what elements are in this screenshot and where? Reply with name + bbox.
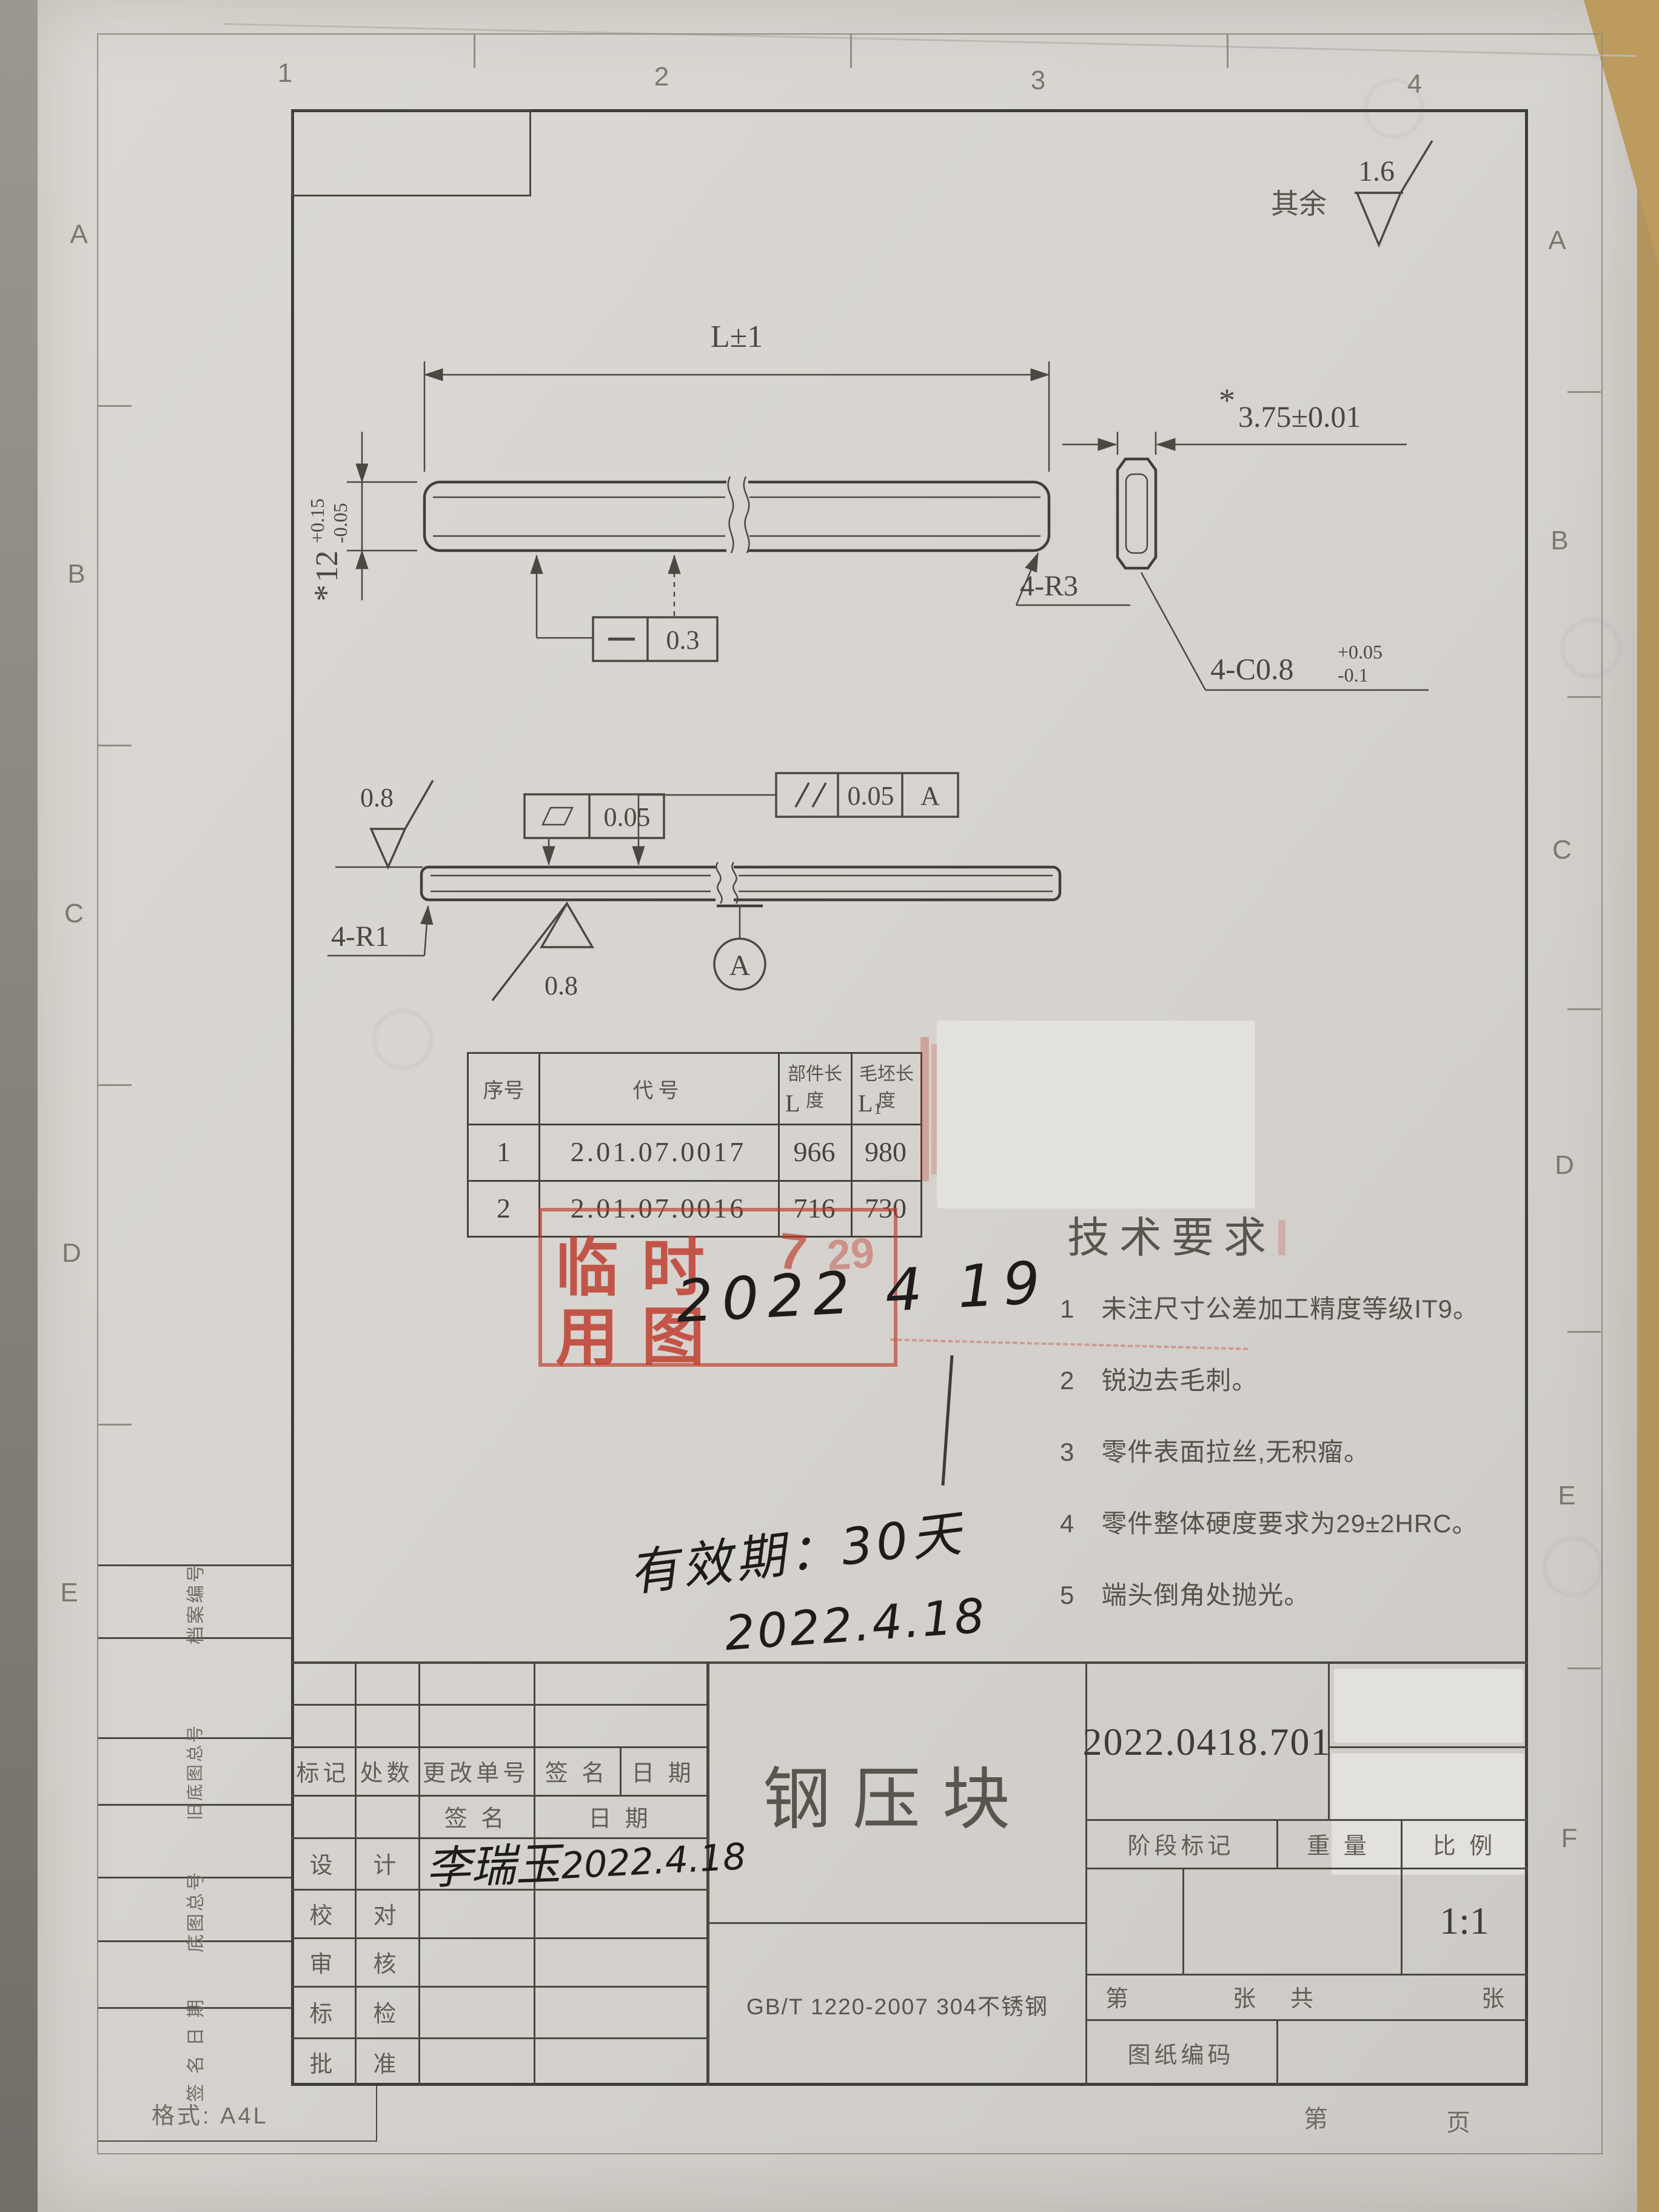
- tech-req-item: 3零件表面拉丝,无积瘤。: [1060, 1432, 1521, 1503]
- sheet-label: 第: [1098, 1974, 1140, 2019]
- grid-letter: F: [1551, 1823, 1587, 1854]
- margin-label-sign-date: 签 名 日 期: [181, 1983, 207, 2116]
- col-header-seq: 序号: [469, 1054, 538, 1124]
- parallelism-icon: [796, 783, 809, 807]
- sub-header-date: 日 期: [534, 1795, 706, 1837]
- redaction-patch: [1334, 1669, 1523, 1743]
- rev-header-date: 日 期: [620, 1746, 706, 1795]
- svg-text:12: 12: [310, 551, 344, 582]
- svg-text:+0.15: +0.15: [306, 498, 328, 543]
- table-row-code: 2.01.07.0017: [538, 1124, 778, 1180]
- margin-label-archive-no: 档案编号: [181, 1552, 207, 1655]
- grid-letter: E: [51, 1578, 87, 1608]
- tech-req-list: 1未注尺寸公差加工精度等级IT9。 2锐边去毛刺。 3零件表面拉丝,无积瘤。 4…: [1060, 1289, 1521, 1646]
- straightness-value: 0.3: [666, 625, 700, 655]
- table-row-part-len: 966: [778, 1124, 851, 1180]
- svg-text:-0.05: -0.05: [329, 503, 351, 543]
- svg-text:-0.1: -0.1: [1338, 664, 1369, 686]
- margin-label-master-no: 底图总号: [181, 1860, 207, 1963]
- grid-number: 3: [1020, 65, 1056, 96]
- grid-tick: [850, 35, 852, 68]
- flatness-value: 0.05: [604, 802, 651, 832]
- role-review: 审: [291, 1937, 355, 1986]
- drawing-number: 2022.0418.701: [1087, 1664, 1327, 1819]
- left-shadow: [0, 0, 38, 2212]
- part-outline-end-view: [1118, 459, 1156, 568]
- tech-req-item: 4零件整体硬度要求为29±2HRC。: [1060, 1503, 1521, 1575]
- parallelism-datum: A: [920, 781, 940, 811]
- rev-header-mark: 标记: [291, 1746, 355, 1795]
- rev-header-order-no: 更改单号: [418, 1746, 534, 1795]
- grid-letter: C: [1544, 835, 1580, 865]
- svg-text:+0.05: +0.05: [1338, 641, 1382, 663]
- red-stamp-fragment: [920, 1037, 929, 1181]
- grid-number: 4: [1396, 69, 1433, 99]
- grid-tick: [1227, 35, 1228, 68]
- dimension-thickness: 3.75±0.01: [1238, 400, 1361, 434]
- rev-header-count: 处数: [355, 1746, 418, 1795]
- table-row-blank-len: 980: [851, 1124, 920, 1180]
- tech-req-title: 技术要求: [1067, 1204, 1276, 1265]
- grid-number: 2: [643, 62, 680, 92]
- page-note-suffix: 页: [1446, 2103, 1470, 2138]
- material-spec: GB/T 1220-2007 304不锈钢: [709, 1924, 1085, 2085]
- format-note: 格式: A4L: [152, 2097, 269, 2130]
- designer-signature: 李瑞玉: [424, 1828, 561, 1897]
- grid-letter: E: [1549, 1481, 1585, 1511]
- parallelism-value: 0.05: [848, 781, 894, 811]
- grid-tick: [1567, 1331, 1601, 1333]
- tech-req-item: 5端头倒角处抛光。: [1060, 1575, 1521, 1646]
- roughness-icon: [1357, 193, 1401, 245]
- stage-mark-label: 阶段标记: [1085, 1819, 1276, 1868]
- surface-default-value: 1.6: [1358, 155, 1395, 187]
- grid-tick: [98, 405, 132, 407]
- red-stamp-fragment: [931, 1044, 937, 1175]
- red-stamp-fragment: [1278, 1220, 1285, 1255]
- datum-label: A: [729, 950, 751, 982]
- grid-letter: A: [1539, 226, 1575, 256]
- table-row-seq: 1: [469, 1124, 538, 1180]
- chamfer-label: 4-C0.8: [1210, 652, 1294, 686]
- part-title: 钢压块: [709, 1664, 1085, 1922]
- margin-label-old-master-no: 旧底图总号: [182, 1711, 206, 1832]
- roughness-top-value: 0.8: [360, 783, 394, 813]
- tech-req-item: 2锐边去毛刺。: [1060, 1360, 1521, 1432]
- scale-label: 比 例: [1401, 1819, 1528, 1868]
- grid-letter: A: [61, 220, 97, 250]
- svg-text:*: *: [307, 585, 345, 602]
- photo-of-engineering-drawing: { "colors": {"paper":"#d8d5d0","line":"#…: [0, 0, 1659, 2212]
- grid-tick: [1567, 391, 1601, 393]
- grid-tick: [474, 35, 475, 68]
- grid-tick: [98, 1424, 132, 1426]
- corner-radius-label: 4-R1: [331, 920, 389, 953]
- scale-value: 1:1: [1401, 1868, 1528, 1974]
- weight-label: 重 量: [1276, 1819, 1401, 1868]
- grid-letter: C: [56, 899, 92, 929]
- flatness-icon: [543, 808, 572, 825]
- role-check: 校: [291, 1889, 355, 1937]
- grid-tick: [1567, 696, 1601, 698]
- role-design: 设: [291, 1837, 355, 1889]
- col-header-code: 代号: [538, 1054, 778, 1124]
- page-note-prefix: 第: [1304, 2099, 1328, 2134]
- grid-number: 1: [267, 58, 303, 89]
- grid-tick: [98, 745, 132, 746]
- grid-letter: B: [1541, 526, 1578, 556]
- grid-tick: [98, 1084, 132, 1086]
- grid-letter: B: [58, 559, 95, 589]
- grid-letter: D: [53, 1238, 90, 1269]
- dimension-length: L±1: [711, 320, 763, 354]
- rev-header-sign: 签 名: [534, 1746, 620, 1795]
- grid-tick: [1567, 1008, 1601, 1010]
- role-standard: 标: [291, 1986, 355, 2037]
- grid-tick: [1567, 1667, 1601, 1669]
- redaction-patch: [937, 1021, 1255, 1208]
- grid-letter: D: [1546, 1150, 1583, 1181]
- part-outline-side-view: [421, 867, 1060, 900]
- table-row-seq: 2: [469, 1180, 538, 1236]
- surface-default-label: 其余: [1271, 188, 1327, 220]
- drawing-code-label: 图纸编码: [1085, 2019, 1276, 2086]
- roughness-icon: [1401, 141, 1432, 193]
- roughness-icon: [371, 829, 405, 867]
- tech-req-item: 1未注尺寸公差加工精度等级IT9。: [1060, 1289, 1521, 1360]
- dimension-width: * 12 +0.15 -0.05: [306, 498, 351, 602]
- dimension-thickness-star: *: [1219, 382, 1235, 418]
- role-approve: 批: [291, 2037, 355, 2086]
- roughness-bottom-value: 0.8: [545, 971, 578, 1000]
